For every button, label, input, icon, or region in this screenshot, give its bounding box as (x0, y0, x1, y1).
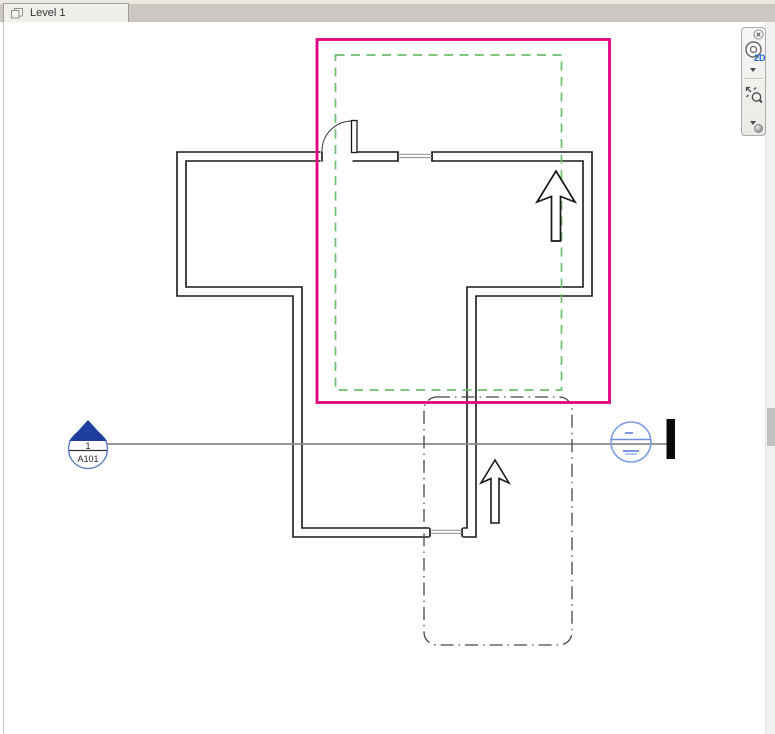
door-swing-arc (322, 121, 352, 151)
tab-level-1[interactable]: Level 1 (3, 3, 129, 22)
wall-outer-boundary (177, 152, 592, 537)
tab-label: Level 1 (30, 7, 65, 19)
zoom-icon[interactable] (744, 85, 764, 105)
wall-inner-boundary (186, 161, 583, 528)
view-tab-bar[interactable]: Level 1 (0, 4, 775, 22)
north-arrow-shape (481, 460, 509, 523)
bottom-window-cut (430, 527, 463, 538)
navigation-bar[interactable]: 2D (741, 27, 766, 136)
close-icon[interactable] (753, 29, 764, 40)
annotation-crop-boundary[interactable] (336, 55, 562, 390)
scrollbar-thumb[interactable] (767, 408, 775, 446)
vertical-scrollbar[interactable] (765, 22, 775, 734)
floor-plan-canvas[interactable]: 1 A101 (0, 0, 775, 734)
steering-wheel-2d-icon[interactable]: 2D (743, 40, 765, 62)
north-arrow-lower[interactable] (481, 460, 509, 523)
walls[interactable] (177, 152, 592, 537)
section-head[interactable]: 1 A101 (69, 420, 108, 469)
section-head-triangle (69, 420, 107, 441)
north-arrow-shape (537, 171, 575, 241)
canvas-left-border (3, 22, 4, 734)
section-tail-bar[interactable] (667, 419, 676, 459)
grid-bubble[interactable] (611, 422, 651, 462)
door-leaf (352, 121, 358, 153)
top-window-cut (398, 150, 433, 163)
section-detail-number: 1 (85, 441, 90, 451)
door-opening-cut (321, 150, 353, 163)
floor-plan-view-icon (10, 7, 24, 20)
wheel-2d-badge: 2D (754, 53, 765, 62)
north-arrow-upper[interactable] (537, 171, 575, 241)
nav-divider (744, 78, 763, 80)
crop-region-boundary[interactable] (317, 40, 610, 403)
nav-options-sphere-icon[interactable] (754, 124, 763, 133)
section-sheet-number: A101 (77, 454, 98, 464)
wheel-options-caret-icon[interactable] (750, 68, 756, 72)
grid-bubble-circle (611, 422, 651, 462)
